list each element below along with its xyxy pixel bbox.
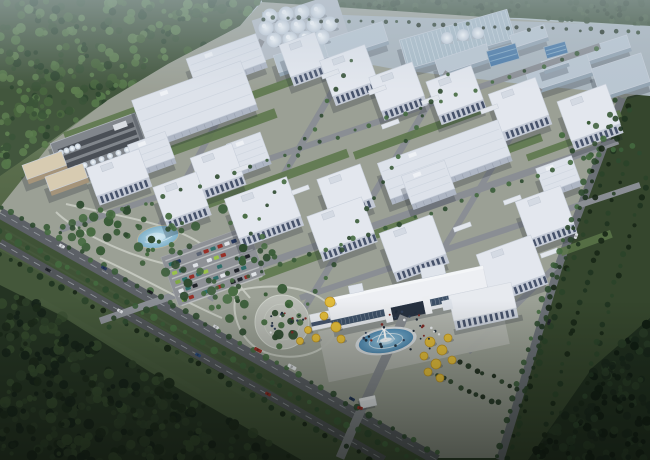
- atmospheric-haze: [0, 0, 650, 90]
- bottom-vignette: [0, 300, 650, 460]
- aerial-site-rendering: [0, 0, 650, 460]
- scene-canvas: [0, 0, 650, 460]
